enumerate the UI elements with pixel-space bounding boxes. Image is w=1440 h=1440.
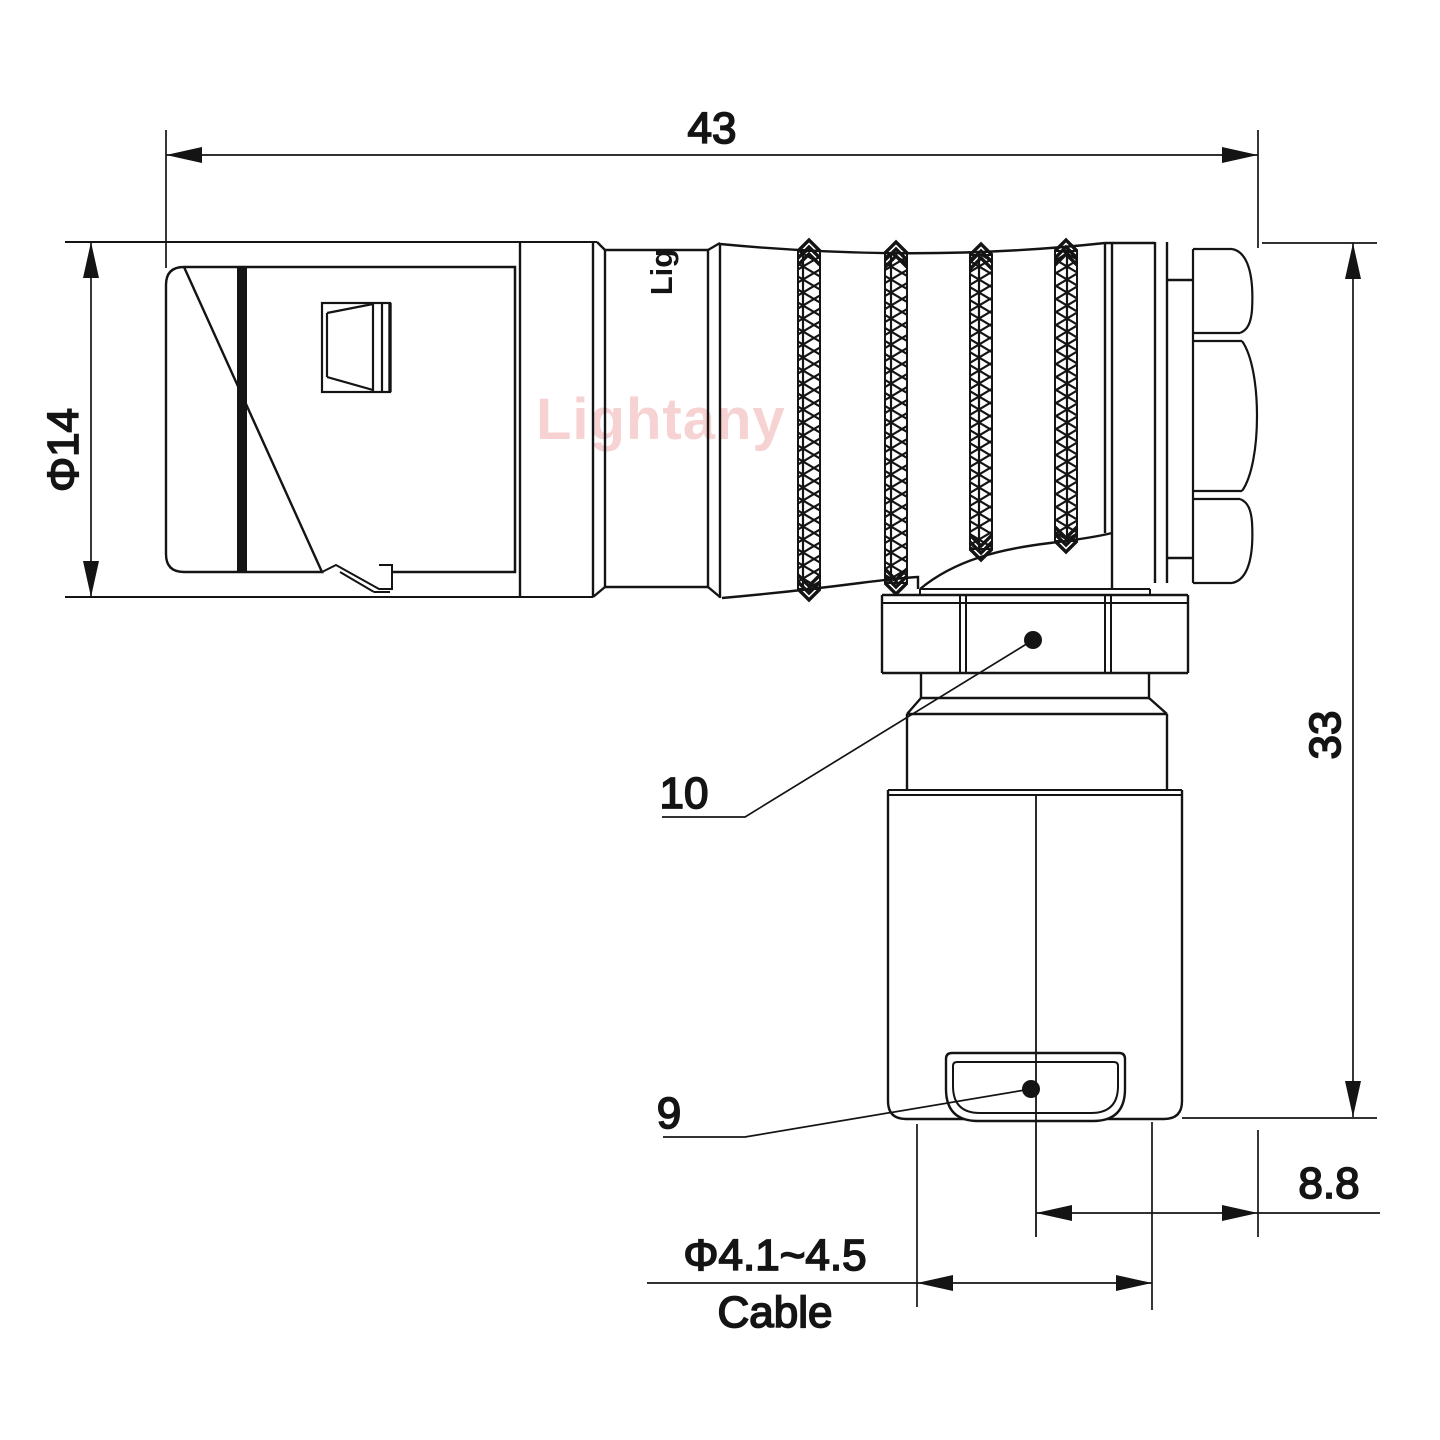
elbow-fillet bbox=[920, 533, 1112, 589]
dim-cable-label-text: Cable bbox=[718, 1288, 833, 1337]
shell-step bbox=[515, 242, 605, 597]
latch-notch bbox=[322, 565, 392, 592]
dimension-height bbox=[1182, 243, 1377, 1118]
dimension-cable-range bbox=[647, 1122, 1152, 1310]
rear-cap bbox=[1105, 242, 1193, 589]
sleeve-key-band bbox=[237, 268, 247, 571]
dim-rear-offset-text: 8.8 bbox=[1298, 1159, 1359, 1208]
dim-height-text: 33 bbox=[1301, 711, 1350, 760]
elbow-body bbox=[907, 673, 1167, 790]
dim-overall-length-text: 43 bbox=[688, 104, 737, 153]
elbow-nut bbox=[882, 589, 1188, 673]
knurled-grip bbox=[720, 240, 1112, 600]
technical-drawing-page: Lightany bbox=[0, 0, 1440, 1440]
front-sleeve bbox=[166, 267, 515, 592]
dim-front-diameter-text: Φ14 bbox=[39, 408, 88, 492]
rear-hex-nut bbox=[1193, 249, 1257, 583]
latch-window bbox=[322, 303, 390, 392]
callout-clamp-text: 9 bbox=[657, 1089, 681, 1138]
connector-body bbox=[65, 240, 1257, 1237]
part-marking-text: Lig bbox=[644, 249, 679, 296]
release-sleeve bbox=[605, 243, 720, 598]
connector-drawing-canvas: Lig 43 Φ14 bbox=[0, 0, 1440, 1440]
callout-nut-text: 10 bbox=[660, 769, 709, 818]
dim-cable-range-text: Φ4.1~4.5 bbox=[683, 1231, 866, 1280]
